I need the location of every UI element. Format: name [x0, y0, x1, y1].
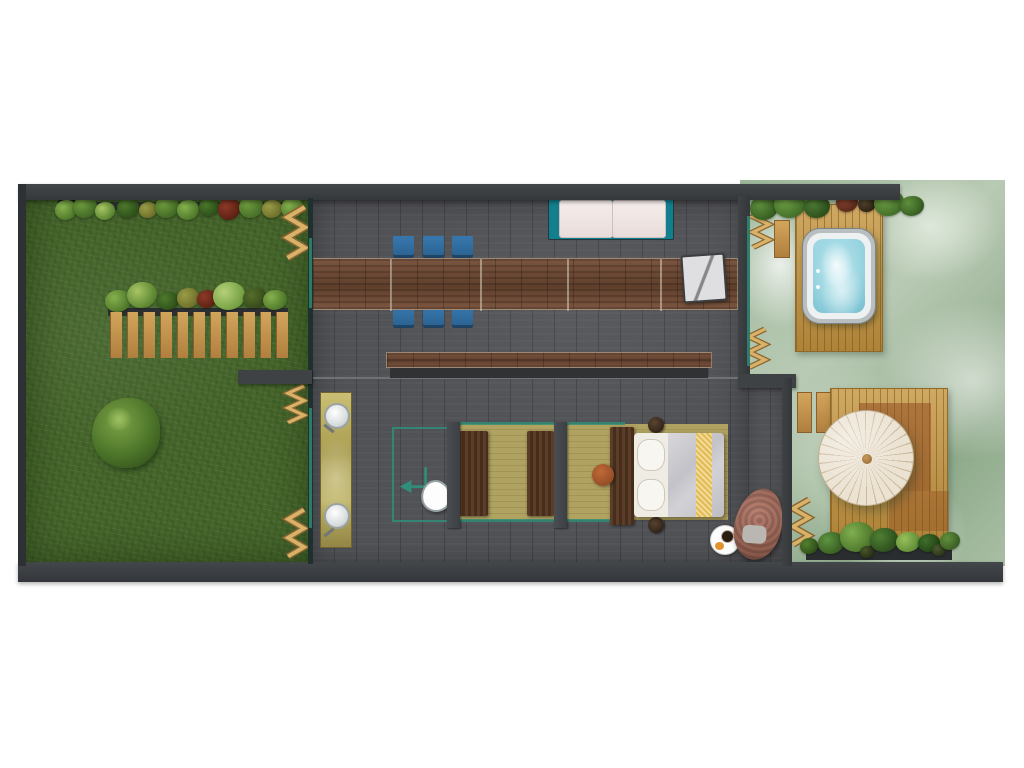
garden-bush	[92, 398, 160, 468]
wardrobe-panel	[527, 431, 554, 516]
plant	[127, 282, 157, 308]
parasol-hub	[862, 454, 872, 464]
bedside-lamp	[648, 417, 664, 433]
pastry	[715, 542, 724, 550]
plant	[900, 196, 924, 216]
plant	[157, 292, 179, 310]
floor-plan-canvas: { "plan_type": "villa-floor-plan", "area…	[0, 0, 1024, 768]
bamboo-screen	[283, 506, 307, 562]
glass-panel	[309, 408, 312, 528]
plant	[177, 200, 199, 220]
bedside-lamp	[648, 517, 664, 533]
plant	[199, 198, 219, 216]
table-seam	[660, 259, 662, 311]
fence-plank	[243, 312, 255, 358]
garden-bush-highlight	[106, 408, 132, 430]
coffee-cup	[721, 530, 734, 543]
bed-runner	[696, 433, 712, 517]
plant	[95, 202, 115, 220]
table-seam	[390, 259, 392, 311]
fence-plank	[177, 312, 189, 358]
fence-plank	[226, 312, 238, 358]
daybed-cushion	[612, 200, 666, 238]
fence-plant-row	[105, 280, 290, 316]
plant	[800, 538, 818, 554]
dining-chair	[423, 236, 444, 258]
glass-panel	[309, 238, 312, 308]
wall-top	[20, 184, 900, 200]
bamboo-screen	[282, 203, 308, 264]
hot-tub	[802, 228, 876, 324]
plant	[117, 198, 139, 218]
partition-post	[447, 422, 460, 528]
plant	[262, 200, 282, 218]
plant	[870, 528, 898, 552]
slatted-fence	[110, 312, 288, 358]
fence-plank	[193, 312, 205, 358]
bamboo-screen	[283, 383, 307, 427]
glass-panel	[747, 216, 750, 366]
pillow	[637, 479, 665, 511]
plant	[213, 282, 245, 310]
low-bench	[386, 352, 712, 368]
plant	[940, 532, 960, 550]
mat-edge	[460, 519, 554, 522]
fence-plank	[260, 312, 272, 358]
deck-plank	[797, 392, 812, 433]
egg-chair-cushion	[742, 524, 767, 544]
dining-chair	[393, 236, 414, 258]
double-bed	[634, 433, 724, 517]
plant	[177, 288, 199, 308]
sink	[324, 503, 350, 529]
plant-red	[218, 198, 240, 220]
mat-edge	[567, 422, 625, 425]
fence-plank	[127, 312, 139, 358]
round-parasol	[818, 410, 914, 506]
table-seam	[480, 259, 482, 311]
plant	[263, 290, 287, 310]
fence-plank	[210, 312, 222, 358]
wall-right-upper	[738, 196, 750, 388]
hot-tub-water	[813, 239, 865, 313]
jet-dot	[816, 285, 820, 289]
daybed	[548, 196, 674, 240]
mat-edge	[460, 422, 554, 425]
wall-bottom	[18, 562, 1003, 582]
jet-dot	[816, 269, 820, 273]
partition-post	[554, 422, 567, 528]
flower-bed	[800, 518, 965, 562]
pillow	[637, 439, 665, 471]
fence-plank	[160, 312, 172, 358]
daybed-cushion	[559, 200, 613, 238]
wardrobe-panel	[459, 431, 488, 516]
vanity-counter	[320, 392, 352, 548]
dining-chair	[452, 236, 473, 258]
wall-garden-stub	[238, 370, 312, 384]
fence-plank	[143, 312, 155, 358]
table-seam	[567, 259, 569, 311]
lounge-chair	[680, 253, 727, 304]
faucet	[323, 528, 334, 538]
floor-plan	[18, 180, 1005, 582]
dining-table	[312, 258, 738, 310]
plant	[896, 532, 920, 552]
fence-plank	[276, 312, 288, 358]
wall-right-lower	[782, 378, 792, 566]
wall-left	[18, 184, 26, 566]
fence-plank	[110, 312, 122, 358]
side-stool	[592, 464, 614, 486]
